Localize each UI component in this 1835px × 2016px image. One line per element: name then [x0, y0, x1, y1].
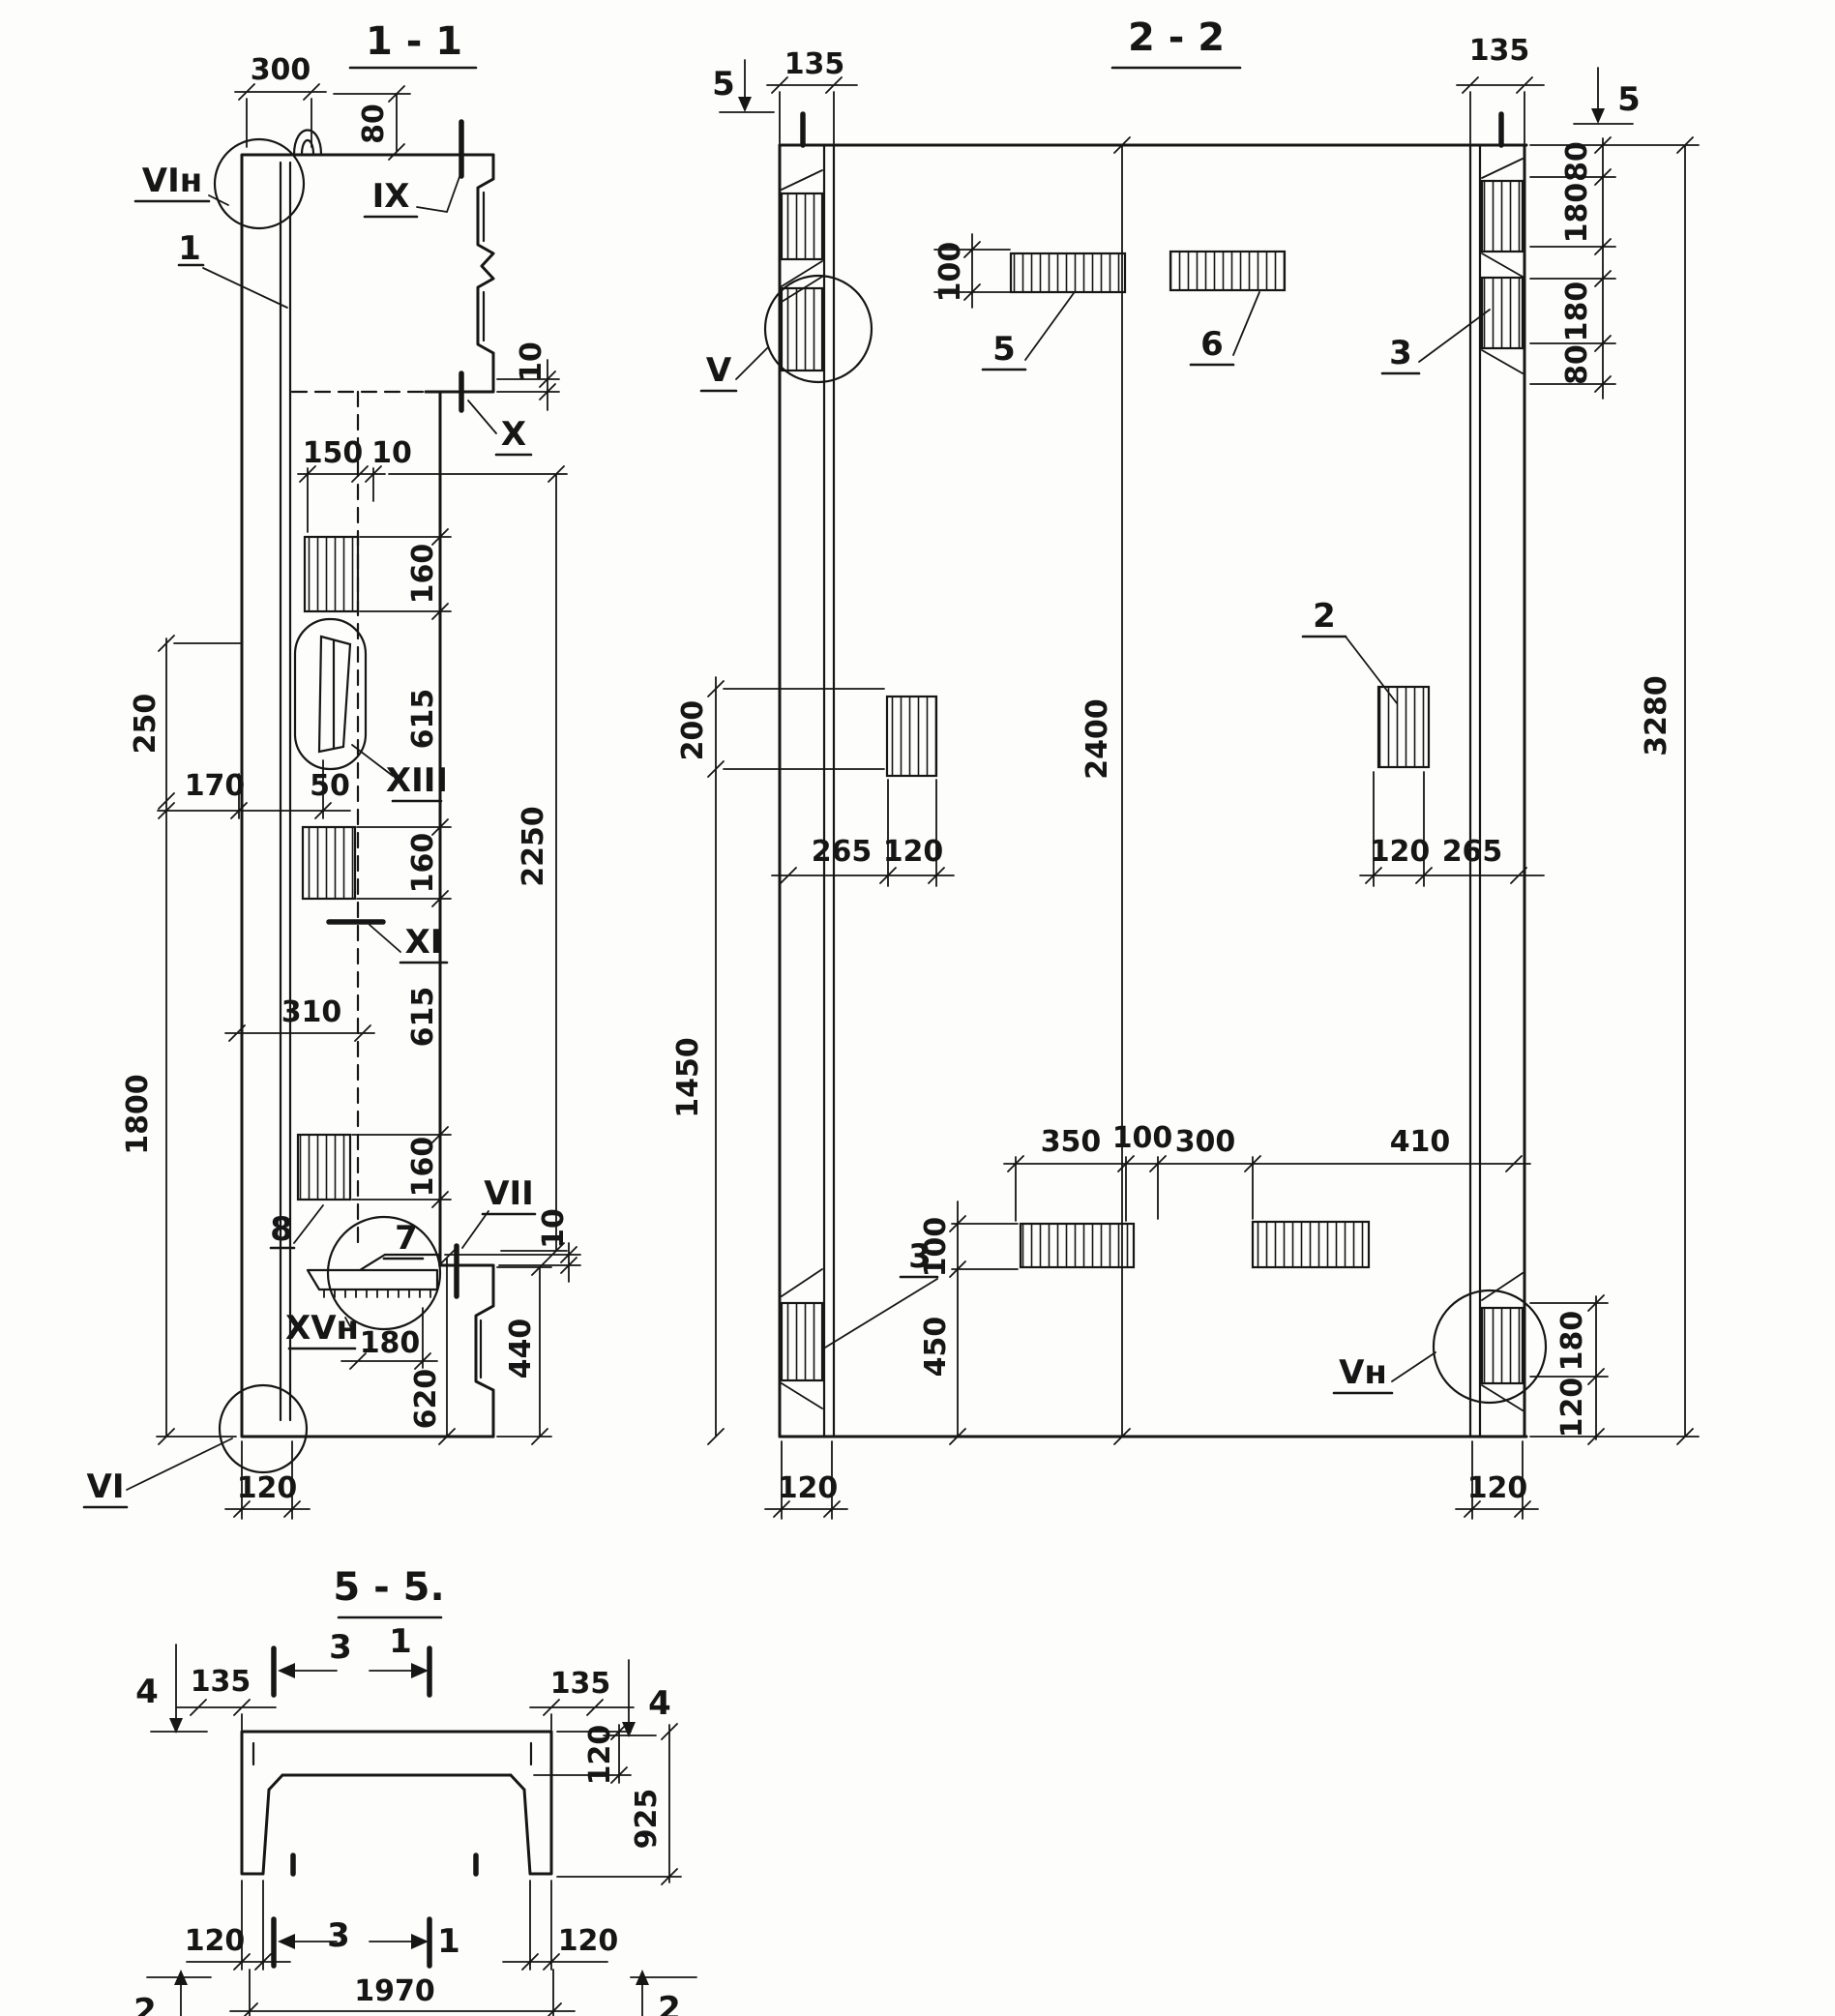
dim-10-bottom: 10 [537, 1208, 571, 1249]
label-xv-n: XVн [285, 1309, 359, 1348]
dim-120: 120 [237, 1471, 298, 1505]
dim-1450: 1450 [671, 1037, 705, 1118]
callout-7: 7 [395, 1219, 418, 1258]
dim-265-left: 265 [812, 835, 873, 869]
dim-120-br-55: 120 [558, 1924, 619, 1958]
marker-2-left: 2 [133, 1992, 157, 2016]
section-markers-5-5 [147, 1645, 696, 2016]
dim-50: 50 [310, 769, 350, 803]
marker-3-top: 3 [329, 1628, 352, 1667]
dim-120-bottom-left: 120 [778, 1471, 839, 1505]
label-vi: VI [87, 1468, 125, 1506]
dim-100-top: 100 [933, 242, 967, 303]
dim-160-a: 160 [406, 544, 440, 605]
dim-10-mid: 10 [371, 436, 412, 470]
marker-1-top: 1 [389, 1622, 412, 1661]
section-1-1-title: 1 - 1 [366, 19, 462, 64]
drawing-sheet: 1 - 1 300 80 VIн 1 IX 10 X 150 10 160 61… [0, 0, 1835, 2016]
section-markers-2-2 [720, 60, 1633, 124]
section-5-5-view: 5 - 5. 4 4 135 135 3 1 120 925 3 1 120 1… [133, 1565, 696, 2016]
callout-8: 8 [270, 1210, 293, 1249]
dim-80: 80 [357, 104, 391, 144]
label-x: X [501, 415, 526, 454]
weld-ticks-5-5 [293, 1855, 476, 1874]
channel-outline-5-5 [242, 1732, 551, 1874]
dim-120-bottom-right: 120 [1467, 1471, 1528, 1505]
dim-170: 170 [185, 769, 246, 803]
dim-160-b: 160 [406, 833, 440, 894]
dim-135-right: 135 [1469, 34, 1530, 68]
dim-100-mid: 100 [1112, 1121, 1173, 1155]
dim-180-c: 180 [1555, 1311, 1589, 1372]
dim-80-bottom: 80 [1560, 344, 1594, 385]
section-2-2-view: 2 - 2 5 5 135 135 80 180 180 80 3280 100… [671, 15, 1699, 1519]
marker-1-bottom: 1 [437, 1922, 460, 1961]
dimensions-2-2 [708, 77, 1699, 1519]
dim-80-top: 80 [1560, 141, 1594, 182]
panel-outline-2-2 [780, 145, 1526, 1437]
marker-4-left: 4 [135, 1673, 159, 1711]
label-vi-n: VIн [142, 162, 202, 200]
dim-1970: 1970 [354, 1974, 435, 2008]
dim-620: 620 [409, 1369, 443, 1430]
callout-2: 2 [1313, 597, 1336, 636]
dim-300: 300 [1175, 1125, 1236, 1159]
dim-615-b: 615 [406, 987, 440, 1048]
anchor-plate [319, 637, 350, 752]
dim-120-c: 120 [1555, 1378, 1589, 1438]
callout-3-bottom: 3 [908, 1237, 932, 1276]
label-xiii: XIII [386, 761, 448, 800]
dim-150: 150 [303, 436, 364, 470]
dim-2400: 2400 [1080, 698, 1114, 780]
dim-120-top-55: 120 [583, 1725, 617, 1786]
dim-135-left: 135 [784, 47, 845, 81]
marker-5-right: 5 [1617, 80, 1641, 119]
callout-1: 1 [178, 229, 201, 268]
dim-180-b: 180 [1560, 282, 1594, 342]
dim-440: 440 [504, 1319, 538, 1379]
marker-2-right: 2 [658, 1990, 681, 2016]
dim-180: 180 [360, 1326, 421, 1360]
dim-160-c: 160 [406, 1137, 440, 1198]
marker-5-left: 5 [712, 65, 735, 104]
callout-5: 5 [992, 330, 1016, 369]
cut-stubs-2-2 [803, 114, 1501, 145]
dim-2250: 2250 [517, 806, 550, 887]
label-v-n: Vн [1339, 1353, 1387, 1392]
dim-250: 250 [129, 694, 163, 755]
callout-6: 6 [1200, 325, 1224, 364]
label-ix: IX [372, 177, 410, 216]
marker-3-bottom: 3 [327, 1916, 350, 1955]
dim-615-a: 615 [406, 689, 440, 750]
dim-410: 410 [1390, 1125, 1451, 1159]
dim-135-left-55: 135 [191, 1665, 252, 1699]
dim-925: 925 [630, 1789, 664, 1850]
section-2-2-title: 2 - 2 [1128, 15, 1225, 60]
dim-1800: 1800 [121, 1074, 155, 1155]
dim-120-right: 120 [1370, 835, 1431, 869]
dim-350: 350 [1041, 1125, 1102, 1159]
dim-300: 300 [251, 53, 311, 87]
hidden-edges-1-1 [292, 392, 424, 1250]
dim-120-bl-55: 120 [185, 1924, 246, 1958]
label-vii: VII [484, 1174, 534, 1213]
dim-180-a: 180 [1560, 183, 1594, 244]
dim-10-top: 10 [515, 341, 548, 382]
structural-drawing: 1 - 1 300 80 VIн 1 IX 10 X 150 10 160 61… [0, 0, 1835, 2016]
section-5-5-title: 5 - 5. [333, 1565, 444, 1610]
dim-310: 310 [281, 995, 342, 1029]
dim-120-left: 120 [883, 835, 944, 869]
section-1-1-view: 1 - 1 300 80 VIн 1 IX 10 X 150 10 160 61… [84, 19, 580, 1519]
dim-200: 200 [676, 700, 710, 761]
dim-450: 450 [919, 1317, 953, 1378]
dim-265-right: 265 [1442, 835, 1503, 869]
dim-135-right-55: 135 [550, 1667, 611, 1701]
dim-3280: 3280 [1640, 675, 1673, 756]
label-v: V [706, 351, 732, 390]
label-xi: XI [405, 923, 443, 962]
callout-3-top: 3 [1389, 334, 1412, 372]
marker-4-right: 4 [648, 1684, 671, 1723]
